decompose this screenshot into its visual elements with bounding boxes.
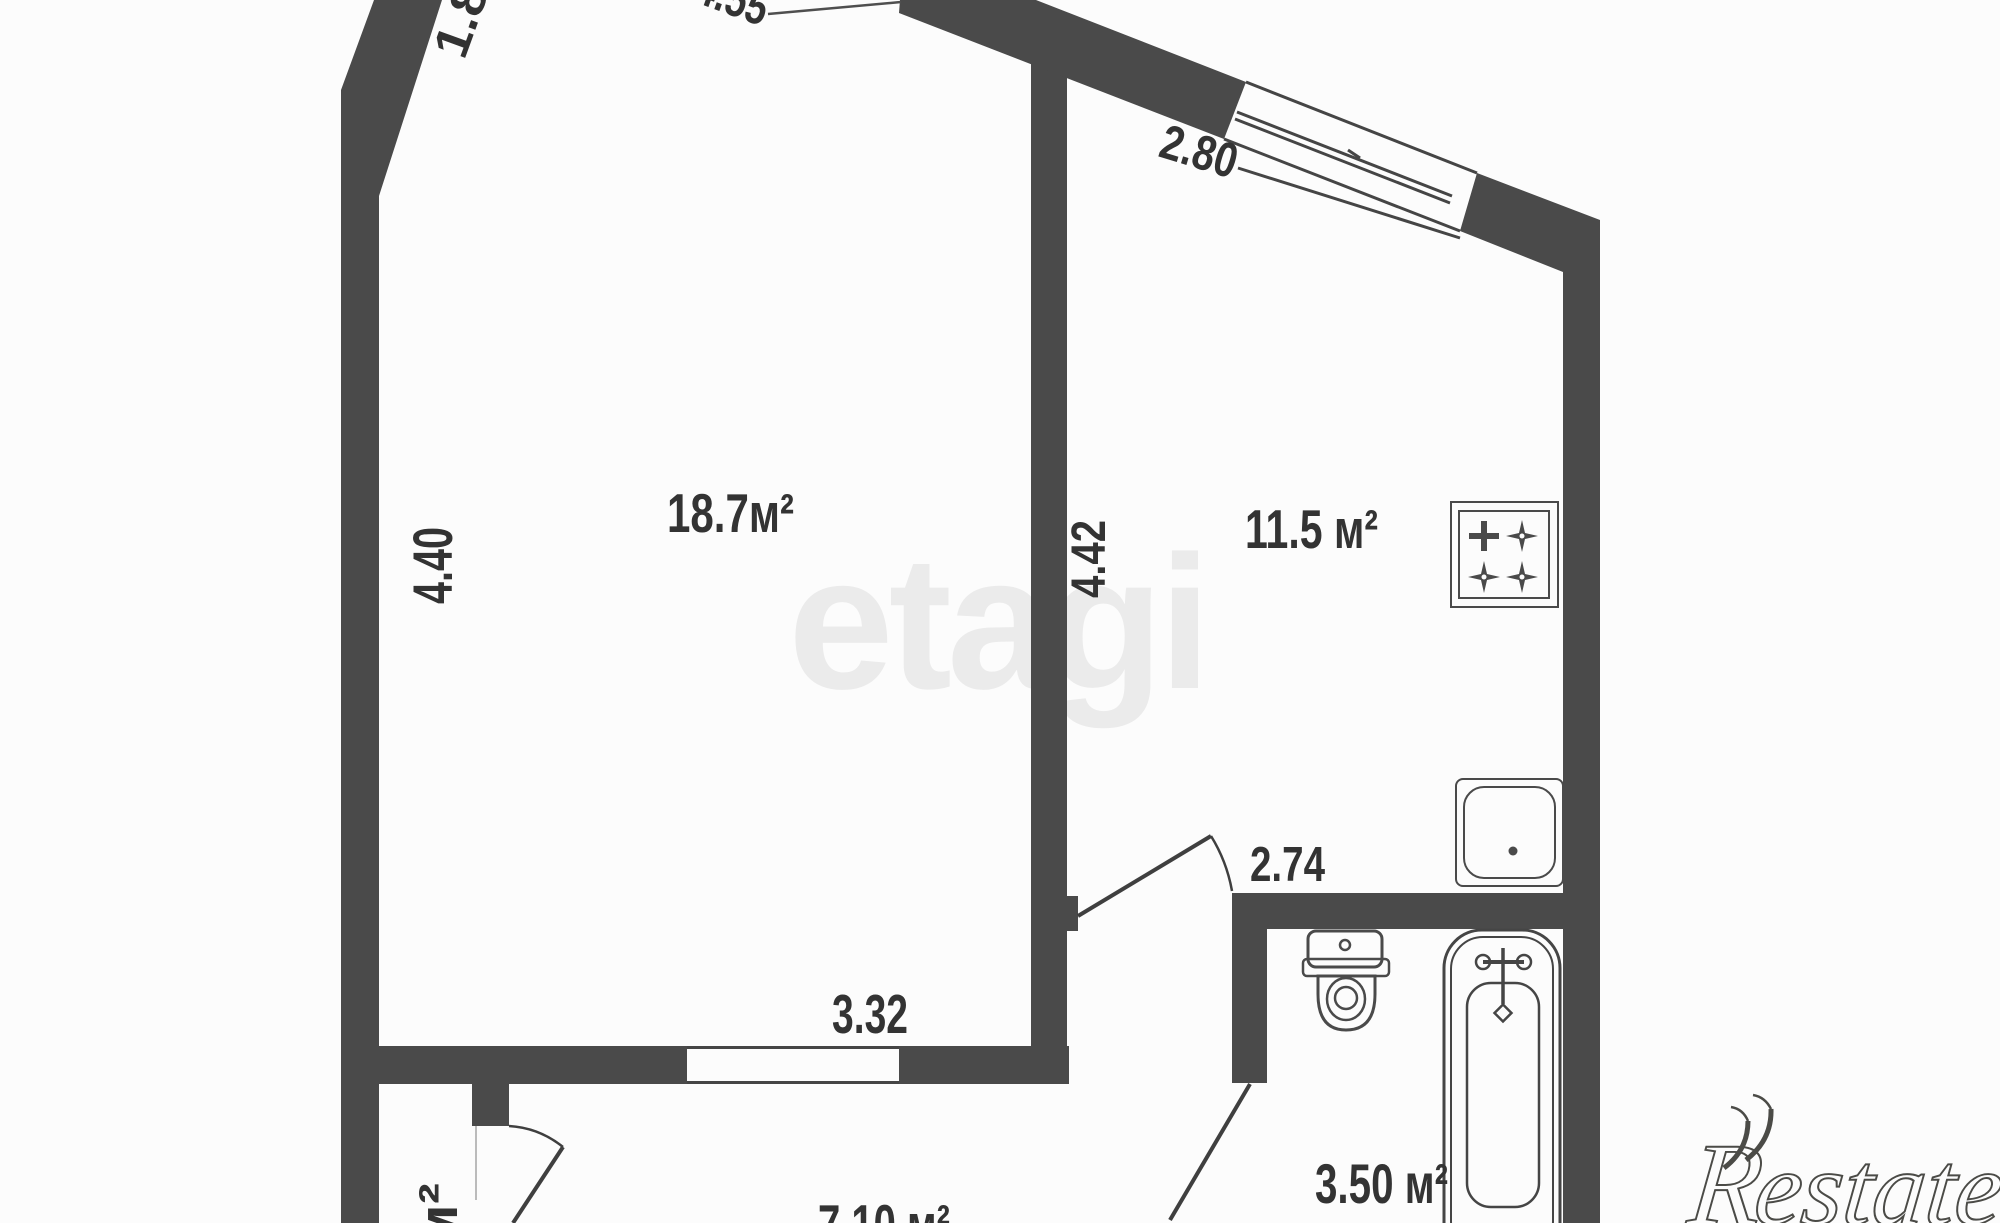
svg-text:7.10 м²: 7.10 м² (818, 1193, 950, 1223)
svg-text:4.42: 4.42 (1063, 520, 1116, 598)
svg-text:Restate: Restate (1682, 1119, 2000, 1223)
svg-text:4.40: 4.40 (401, 527, 464, 604)
svg-text:18.7м²: 18.7м² (667, 482, 794, 544)
svg-text:3.32: 3.32 (832, 983, 908, 1045)
svg-text:etagi: etagi (788, 517, 1206, 729)
svg-text:11.5 м²: 11.5 м² (1245, 498, 1378, 560)
svg-text:3.50 м²: 3.50 м² (1315, 1152, 1448, 1215)
svg-text:м²: м² (407, 1183, 469, 1223)
svg-text:2.74: 2.74 (1250, 838, 1325, 892)
